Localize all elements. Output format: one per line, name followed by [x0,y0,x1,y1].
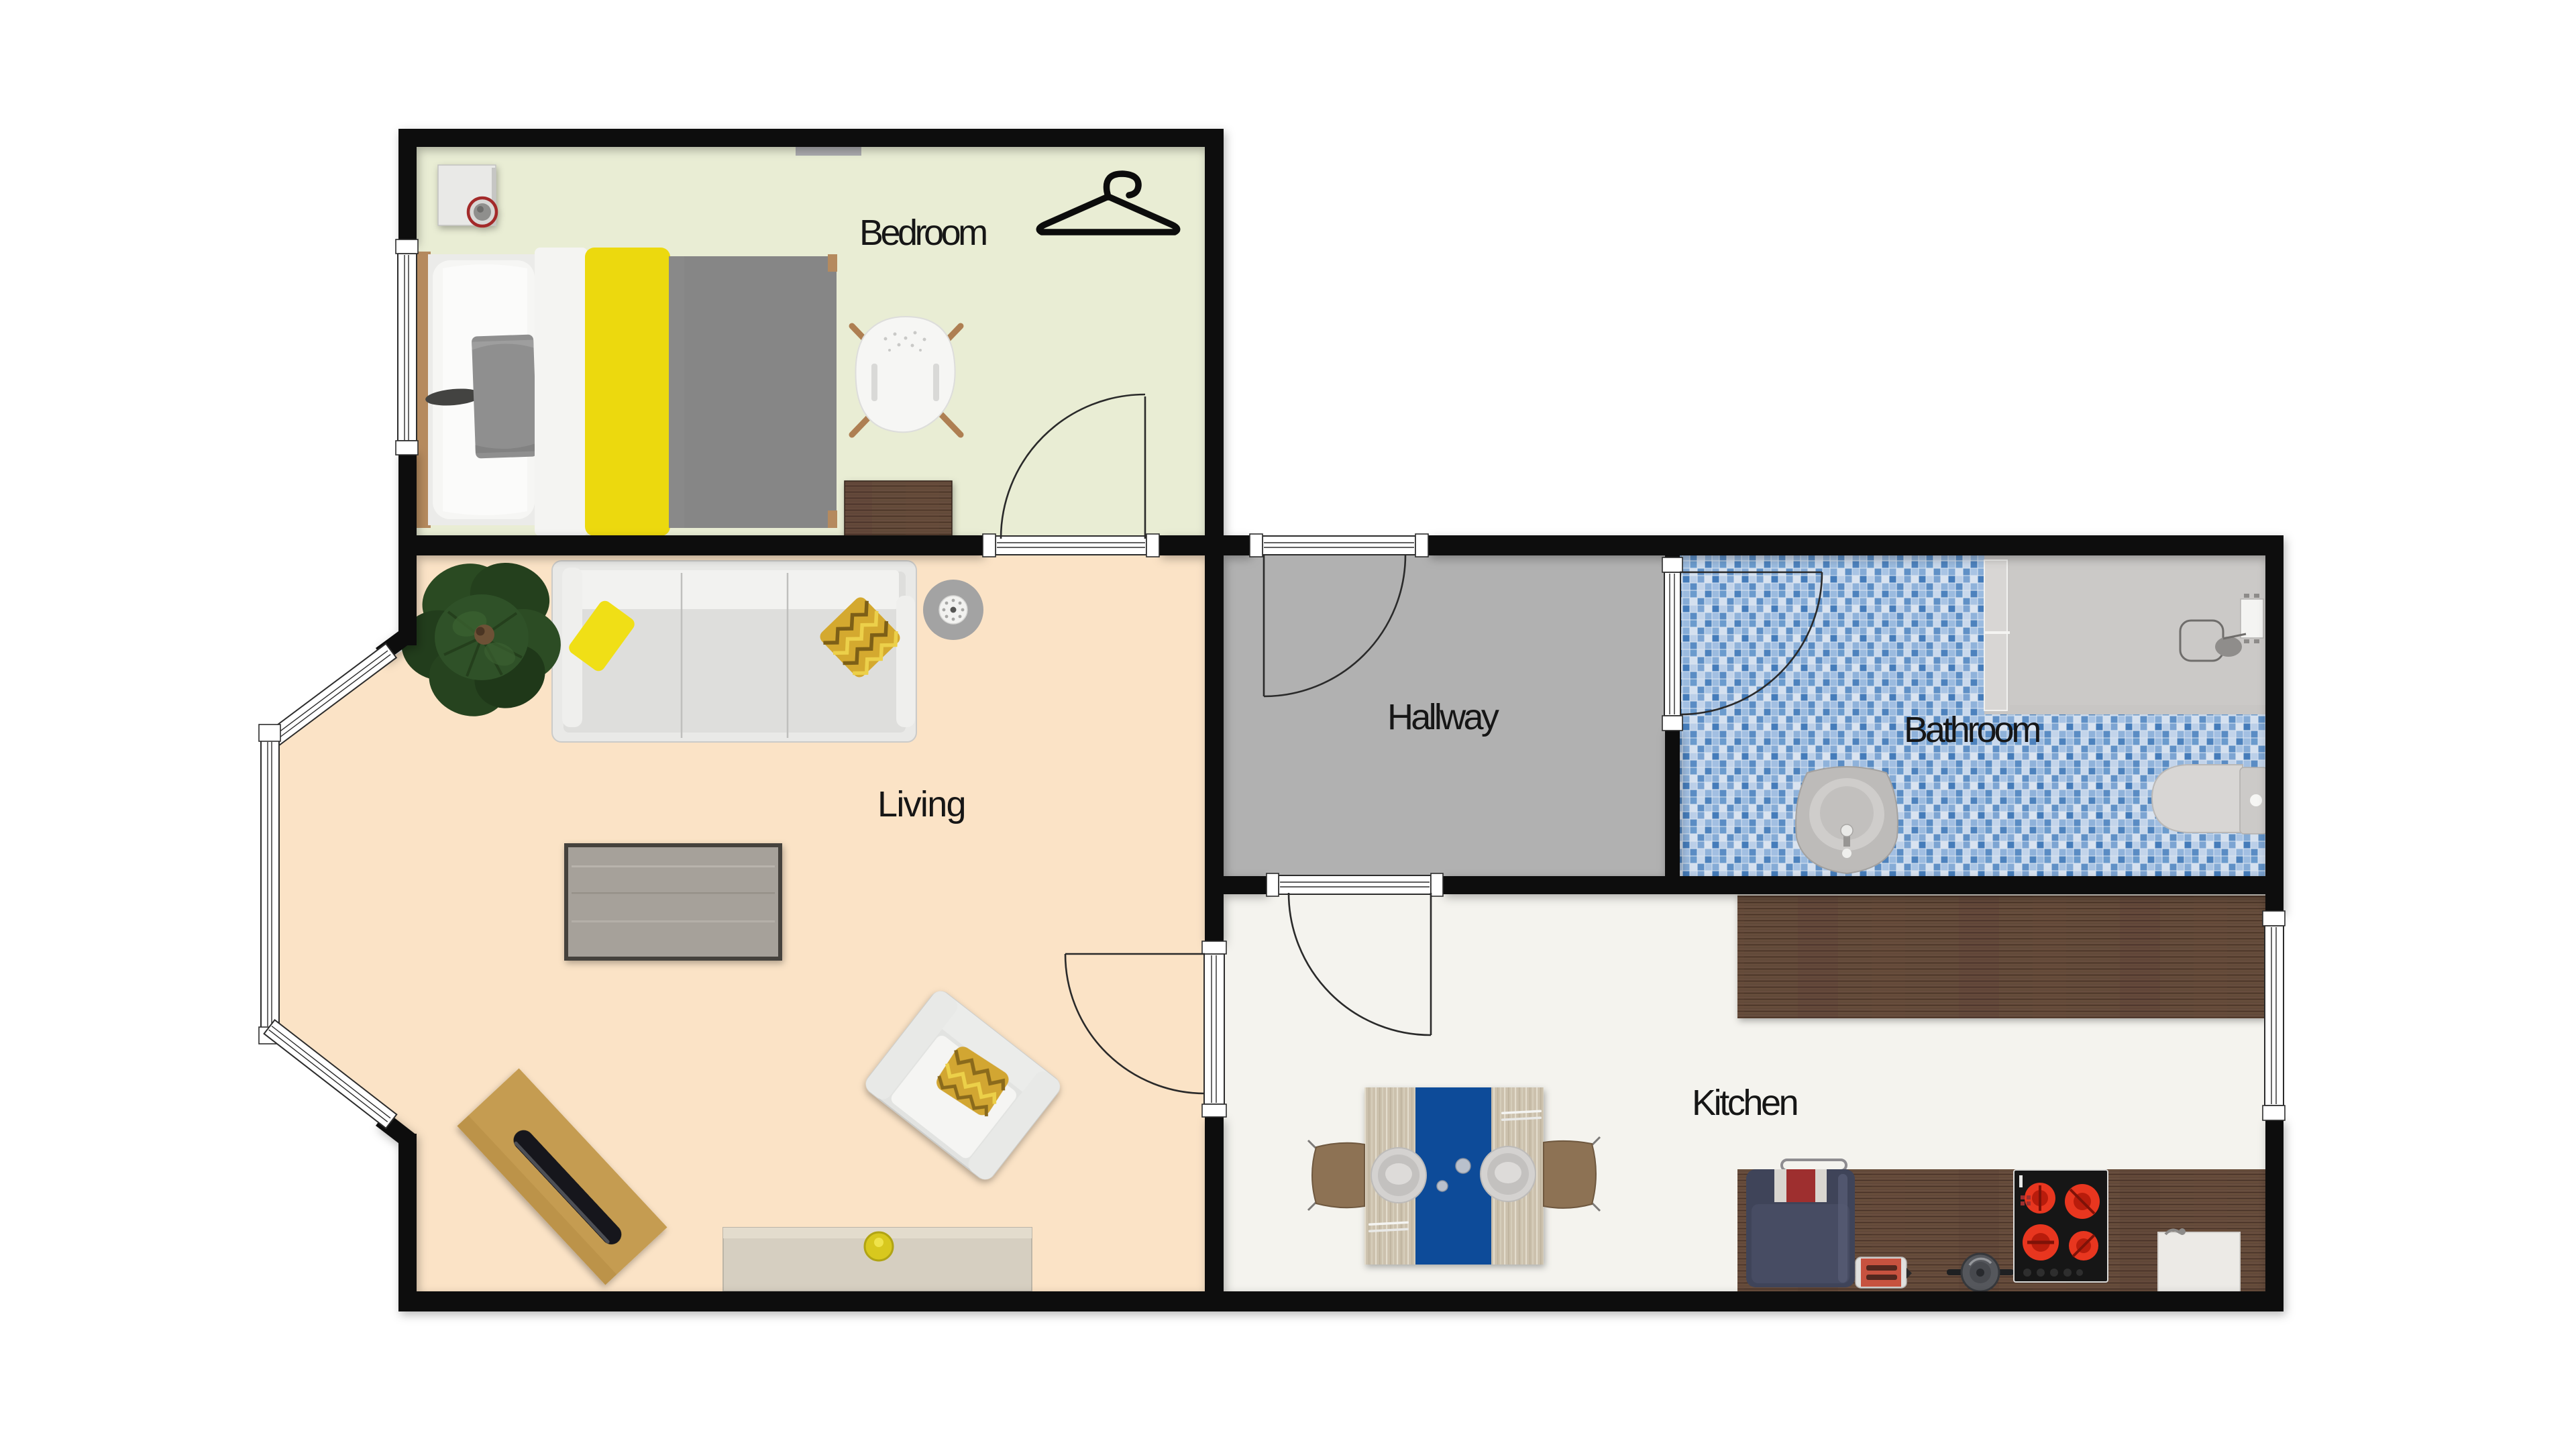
svg-text:Living: Living [877,784,965,824]
svg-text:Kitchen: Kitchen [1692,1083,1797,1123]
svg-text:Hallway: Hallway [1387,697,1499,737]
svg-text:Bathroom: Bathroom [1904,710,2039,750]
svg-text:Bedroom: Bedroom [859,213,986,253]
